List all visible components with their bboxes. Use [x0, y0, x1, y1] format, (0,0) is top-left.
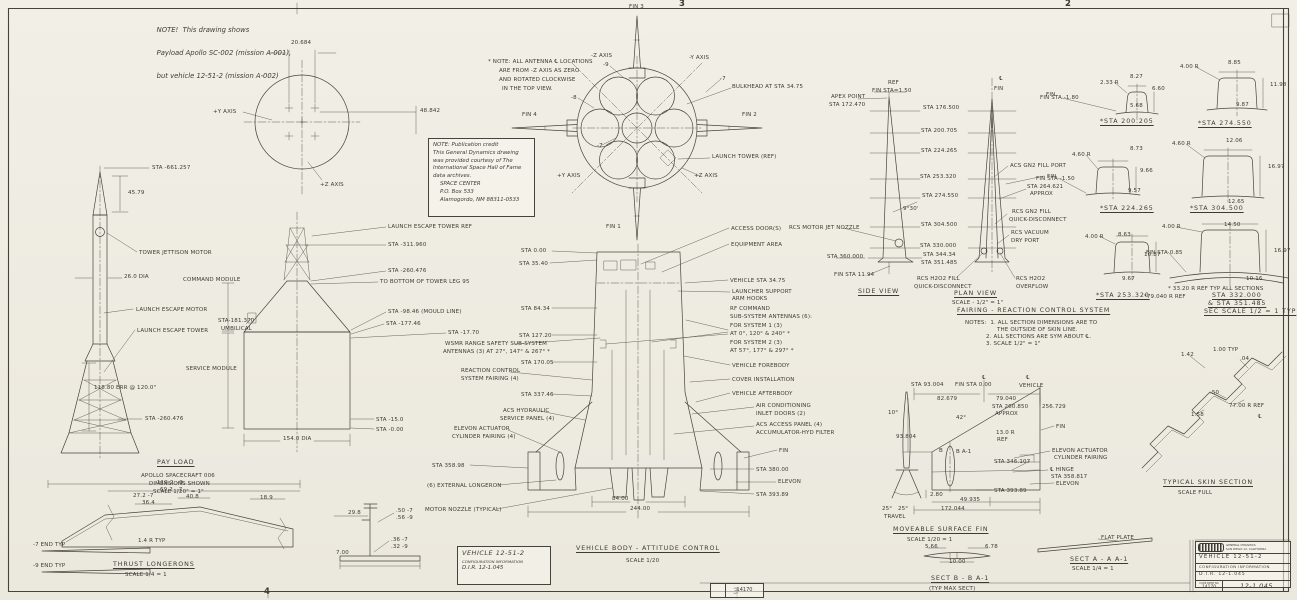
drawing-label: -Y AXIS: [689, 55, 709, 61]
drawing-label: SCALE 1/4 = 1: [1072, 566, 1114, 572]
drawing-label: OVERFLOW: [1016, 284, 1048, 290]
credit-line: Alamogordo, NM 88311-0533: [433, 197, 530, 205]
drawing-label: FLAT PLATE: [1101, 535, 1134, 541]
drawing-label: 27.2 -7: [133, 493, 154, 499]
drawing-label: WSMR RANGE SAFETY SUB-SYSTEM: [445, 341, 547, 347]
drawing-label: TYPICAL SKIN SECTION: [1163, 479, 1253, 486]
drawing-label: COVER INSTALLATION: [732, 377, 795, 383]
drawing-label: 6.78: [985, 544, 998, 550]
general-dynamics-logo-icon: [1198, 543, 1224, 552]
drawing-label: 48.842: [420, 108, 440, 114]
drawing-label: COMMAND MODULE: [183, 277, 241, 283]
drawing-label: ELEVON: [778, 479, 801, 485]
title-block-number-row: CODE IDENT NO 14170 12-1.045: [1196, 580, 1290, 592]
drawing-label: SERVICE PANEL (4): [500, 416, 554, 422]
drawing-label: APPROX: [1030, 191, 1053, 197]
drawing-label: 256.729: [1042, 404, 1066, 410]
drawing-label: ELEVON: [1056, 481, 1079, 487]
drawing-label: *STA 200.205: [1100, 118, 1154, 125]
drawing-label: (TYP MAX SECT): [929, 586, 975, 592]
drawing-label: SCALE 1/4 = 1: [125, 572, 167, 578]
drawing-label: RCS MOTOR JET NOZZLE: [789, 225, 860, 231]
drawing-label: STA 332.000: [1212, 292, 1262, 299]
drawing-label: FOR SYSTEM 1 (3): [730, 323, 782, 329]
drawing-label: 20.684: [291, 40, 311, 46]
drawing-label: STA -98.46 (MOULD LINE): [388, 309, 462, 315]
drawing-label: FIN STA 0.00: [955, 382, 992, 388]
drawing-label: .56 -9: [396, 515, 413, 521]
info-config: CONFIGURATION INFORMATION: [462, 559, 546, 564]
drawing-label: ACCESS DOOR(S): [731, 226, 781, 232]
drawing-label: FIN 1: [606, 224, 621, 230]
drawing-label: 1.00 TYP: [1213, 347, 1238, 353]
drawing-label: BULKHEAD AT STA 34.75: [732, 84, 803, 90]
drawing-label: RCS H2O2 FILL: [917, 276, 960, 282]
drawing-label: 2: [1065, 0, 1071, 10]
drawing-label: * NOTE: ALL ANTENNA ℄ LOCATIONS: [488, 59, 593, 65]
drawing-label: ELEVON ACTUATOR: [1052, 448, 1108, 454]
drawing-label: STA 358.98: [432, 463, 465, 469]
drawing-label: *STA 304.500: [1190, 205, 1244, 212]
drawing-label: FIN: [1056, 424, 1065, 430]
drawing-label: FIN 3: [629, 4, 644, 10]
credit-line: NOTE: Publication credit: [433, 142, 530, 150]
drawing-label: SIDE VIEW: [858, 288, 899, 295]
drawing-label: ARM HOOKS: [732, 296, 767, 302]
drawing-label: STA-181.370: [218, 318, 254, 324]
blueprint-sheet: 20.68448.842+Y AXIS+Z AXISSTA -661.25745…: [0, 0, 1297, 600]
drawing-label: NOTES: 1. ALL SECTION DIMENSIONS ARE TO: [965, 320, 1097, 326]
drawing-label: 79.040: [996, 396, 1016, 402]
drawing-label: 9.57: [1128, 188, 1141, 194]
drawing-label: SEC SCALE 1/2 = 1 TYP: [1204, 308, 1296, 315]
drawing-label: 4: [264, 588, 270, 598]
drawing-label: 2.80: [930, 492, 943, 498]
drawing-label: SCALE - 1/2" = 1": [952, 300, 1003, 306]
drawing-label: ACS ACCESS PANEL (4): [756, 422, 822, 428]
drawing-label: AT 0°, 120° & 240° *: [730, 331, 790, 337]
drawing-label: 16.97: [1268, 164, 1285, 170]
drawing-label: 4.60 R: [1072, 152, 1091, 158]
drawing-label: VEHICLE FOREBODY: [732, 363, 790, 369]
drawing-label: STA 260.850: [992, 404, 1028, 410]
drawing-label: .04: [1240, 356, 1249, 362]
drawing-label: REACTION CONTROL: [461, 368, 520, 374]
drawing-label: 11.98: [1270, 82, 1287, 88]
drawing-label: 10.00: [949, 559, 966, 565]
drawing-label: 119.2 -9: [157, 480, 183, 486]
drawing-label: 3: [679, 0, 685, 10]
drawing-label: 49.935: [960, 497, 980, 503]
drawing-label: 3. SCALE 1/2" = 1": [986, 341, 1041, 347]
drawing-label: 14.50: [1224, 222, 1241, 228]
drawing-label: B A-1: [956, 449, 971, 455]
drawing-label: FIN STA 0.85: [1146, 250, 1183, 256]
drawing-label: 7.00: [336, 550, 349, 556]
drawing-label: 9.67: [1122, 276, 1135, 282]
drawing-label: 25°: [882, 506, 892, 512]
drawing-label: FIN: [994, 86, 1003, 92]
drawing-label: +Z AXIS: [320, 182, 344, 188]
drawing-label: FIN 4: [522, 112, 537, 118]
drawing-label: SECT B - B A-1: [931, 575, 989, 582]
drawing-label: AT 57°, 177° & 297° *: [730, 348, 794, 354]
drawing-label: *79.040 R REF: [1144, 294, 1186, 300]
drawing-label: 5.66: [925, 544, 938, 550]
drawing-label: APEX POINT: [831, 94, 865, 100]
drawing-label: 2. ALL SECTIONS ARE SYM ABOUT ℄.: [986, 334, 1091, 340]
drawing-label: 84.00: [612, 496, 629, 502]
drawing-label: FAIRING - REACTION CONTROL SYSTEM: [957, 307, 1110, 314]
drawing-label: STA -177.46: [386, 321, 421, 327]
drawing-label: SERVICE MODULE: [186, 366, 237, 372]
drawing-label: RCS H2O2: [1016, 276, 1045, 282]
drawing-label: 69.2 -7: [160, 487, 182, 493]
drawing-label: -8: [571, 95, 577, 101]
drawing-label: ANTENNAS (3) AT 27°, 147° & 267° *: [443, 349, 550, 355]
drawing-label: VEHICLE BODY - ATTITUDE CONTROL: [576, 545, 720, 552]
drawing-label: 77.00 R REF: [1229, 403, 1264, 409]
title-block: GENERAL DYNAMICS SAN DIEGO 12, CALIFORNI…: [1195, 541, 1291, 588]
drawing-label: SCALE 1/20 = 1: [907, 537, 952, 543]
drawing-label: 9.87: [1236, 102, 1249, 108]
drawing-label: RCS GN2 FILL: [1012, 209, 1051, 215]
drawing-label: .50 -7: [396, 508, 413, 514]
credit-line: data archives.: [433, 173, 530, 181]
drawing-label: 8.85: [1228, 60, 1241, 66]
drawing-label: *STA 274.550: [1198, 120, 1252, 127]
drawing-label: 1.42: [1181, 352, 1194, 358]
drawing-label: APPROX: [995, 411, 1018, 417]
drawing-label: 4.00 R: [1180, 64, 1199, 70]
drawing-label: 9.66: [1140, 168, 1153, 174]
vehicle-info-box: VEHICLE 12-51-2 CONFIGURATION INFORMATIO…: [457, 546, 551, 585]
drawing-label: +Y AXIS: [557, 173, 580, 179]
drawing-label: 154.0 DIA: [283, 436, 311, 442]
drawing-label: LAUNCH ESCAPE MOTOR: [136, 307, 207, 313]
drawing-label: -7: [720, 76, 726, 82]
drawing-label: UMBILICAL: [221, 326, 252, 332]
drawing-label: STA -311.960: [388, 242, 426, 248]
title-block-config: CONFIGURATION INFORMATION: [1196, 563, 1290, 571]
stamp-number: 14170: [726, 584, 763, 597]
drawing-label: STA -17.70: [448, 330, 479, 336]
drawing-label: +Z AXIS: [694, 173, 718, 179]
drawing-label: -9: [603, 62, 609, 68]
drawing-label: -9 END TYP: [33, 563, 65, 569]
drawing-scope-note: NOTE! This drawing shows Payload Apollo …: [148, 13, 291, 94]
credit-line: P.O. Box 533: [433, 189, 530, 197]
drawing-label: ℄ HINGE: [1050, 467, 1074, 473]
drawing-label: THRUST LONGERONS: [113, 561, 195, 568]
stamp-blank-cell: [711, 584, 726, 597]
drawing-label: 18.9: [260, 495, 273, 501]
drawing-label: FIN STA 11.94: [834, 272, 874, 278]
code-ident-number: 14170: [1202, 586, 1216, 590]
drawing-label: 45.79: [128, 190, 145, 196]
drawing-label: 8.63: [1118, 232, 1131, 238]
drawing-label: 4.60 R: [1172, 141, 1191, 147]
drawing-label: STA -15.0: [376, 417, 404, 423]
drawing-label: AND ROTATED CLOCKWISE: [499, 77, 576, 83]
drawing-label: -Z AXIS: [591, 53, 612, 59]
drawing-label: 118.80 ERR @ 120.0": [94, 385, 156, 391]
drawing-label: VEHICLE AFTERBODY: [732, 391, 792, 397]
drawing-number: 12-1.045: [1223, 581, 1290, 592]
drawing-label: 13.0 R: [996, 430, 1015, 436]
drawing-label: 40.8: [186, 494, 199, 500]
drawing-label: & STA 351.485: [1208, 300, 1266, 307]
drawing-label: STA 304.500: [921, 222, 957, 228]
publication-credit-box: NOTE: Publication credit This General Dy…: [428, 138, 535, 217]
drawing-label: STA 380.00: [756, 467, 789, 473]
drawing-label: REF: [997, 437, 1008, 443]
drawing-label: 4.00 R: [1085, 234, 1104, 240]
info-vehicle: VEHICLE 12-51-2: [462, 549, 546, 557]
drawing-label: STA 274.550: [922, 193, 958, 199]
drawing-label: 6.60: [1152, 86, 1165, 92]
drawing-label: MOTOR NOZZLE (TYPICAL): [425, 507, 502, 513]
drawing-label: (6) EXTERNAL LONGERON: [427, 483, 502, 489]
drawing-label: TRAVEL: [884, 514, 906, 520]
drawing-label: 16.97: [1274, 248, 1291, 254]
drawing-label: STA 172.470: [829, 102, 865, 108]
drawing-label: 25°: [898, 506, 908, 512]
drawing-label: STA 127.20: [519, 333, 552, 339]
drawing-label: 93.804: [896, 434, 916, 440]
credit-line: was provided courtesy of The: [433, 158, 530, 166]
drawing-label: FIN: [779, 448, 788, 454]
drawing-label: LAUNCH ESCAPE TOWER REF: [388, 224, 472, 230]
drawing-label: REF: [888, 80, 899, 86]
drawing-label: RF COMMAND: [730, 306, 770, 312]
drawing-label: 26.0 DIA: [124, 274, 149, 280]
drawing-label: *STA 224.265: [1100, 205, 1154, 212]
title-block-dir: D.I.R. 12-1.045: [1196, 571, 1290, 580]
drawing-label: 2.33 R: [1100, 80, 1119, 86]
drawing-label: STA 393.89: [994, 488, 1027, 494]
drawing-label: TOWER JETTISON MOTOR: [139, 250, 212, 256]
drawing-label: STA 253.320: [920, 174, 956, 180]
drawing-label: ACCUMULATOR-HYD FILTER: [756, 430, 834, 436]
drawing-label: CYLINDER FAIRING (4): [452, 434, 516, 440]
drawing-label: STA 224.265: [921, 148, 957, 154]
drawing-label: QUICK-DISCONNECT: [1009, 217, 1067, 223]
drawing-label: 4.00 R: [1162, 224, 1181, 230]
drawing-label: ℄: [982, 375, 986, 381]
drawing-label: LAUNCHER SUPPORT: [732, 289, 792, 295]
drawing-label: STA -260.476: [388, 268, 426, 274]
drawing-label: B: [939, 448, 943, 454]
drawing-label: QUICK-DISCONNECT: [914, 284, 972, 290]
drawing-label: SYSTEM FAIRING (4): [461, 376, 519, 382]
drawing-label: 12.06: [1226, 138, 1243, 144]
drawing-label: CYLINDER FAIRING: [1054, 455, 1107, 461]
drawing-label: LAUNCH ESCAPE TOWER: [137, 328, 208, 334]
drawing-label: LAUNCH TOWER (REF): [712, 154, 776, 160]
drawing-label: EQUIPMENT AREA: [731, 242, 782, 248]
drawing-label: STA 344.34: [923, 252, 956, 258]
drawing-label: FOR SYSTEM 2 (3): [730, 340, 782, 346]
drawing-label: STA 93.004: [911, 382, 944, 388]
drawing-label: VEHICLE: [1019, 383, 1043, 389]
drawing-label: ELEVON ACTUATOR: [454, 426, 510, 432]
drawing-label: +Y AXIS: [213, 109, 236, 115]
drawing-label: SUB-SYSTEM ANTENNAS (6):: [730, 314, 812, 320]
drawing-label: STA 264.621: [1027, 184, 1063, 190]
drawing-label: ℄: [999, 76, 1003, 82]
drawing-label: 36.4: [142, 500, 155, 506]
title-block-vehicle: VEHICLE 12-51-2: [1196, 553, 1290, 563]
drawing-label: MOVEABLE SURFACE FIN: [893, 526, 988, 533]
drawing-label: SCALE 1/20: [626, 558, 659, 564]
credit-line: This General Dynamics drawing: [433, 150, 530, 158]
drawing-label: INLET DOORS (2): [756, 411, 805, 417]
drawing-label: THE OUTSIDE OF SKIN LINE.: [997, 327, 1078, 333]
drawing-label: STA 393.89: [756, 492, 789, 498]
drawing-label: 8.27: [1130, 74, 1143, 80]
drawing-label: -7: [597, 143, 603, 149]
drawing-label: STA 330.000: [920, 243, 956, 249]
drawing-label: 82.679: [937, 396, 957, 402]
drawing-label: STA 0.00: [521, 248, 546, 254]
drawing-label: ℄: [1026, 375, 1030, 381]
drawing-label: PLAN VIEW: [954, 290, 997, 297]
drawing-label: APOLLO SPACECRAFT 006: [141, 473, 215, 479]
drawing-label: TO BOTTOM OF TOWER LEG 95: [380, 279, 470, 285]
drawing-label: SCALE FULL: [1178, 490, 1212, 496]
drawing-label: IN THE TOP VIEW.: [502, 86, 553, 92]
drawing-label: STA 360.000: [827, 254, 863, 260]
drawing-label: ACS GN2 FILL PORT: [1010, 163, 1066, 169]
drawing-label: FIN STA=1.50: [872, 88, 912, 94]
drawing-label: STA 170.05: [521, 360, 554, 366]
drawing-label: STA -0.00: [376, 427, 404, 433]
drawing-label: 1.58: [1191, 412, 1204, 418]
title-block-company-row: GENERAL DYNAMICS SAN DIEGO 12, CALIFORNI…: [1196, 542, 1290, 553]
drawing-label: ℄: [1258, 414, 1262, 420]
drawing-label: FIN STA -1.50: [1036, 176, 1075, 182]
scope-note-line: but vehicle 12-51-2 (mission A-002): [157, 72, 279, 80]
drawing-label: FIN STA -1.80: [1040, 95, 1079, 101]
drawing-label: FIN 2: [742, 112, 757, 118]
scope-note-line: Payload Apollo SC-002 (mission A-001),: [157, 49, 291, 57]
drawing-label: RCS VACUUM: [1011, 230, 1049, 236]
drawing-label: STA 346.107: [994, 459, 1030, 465]
drawing-label: 8.73: [1130, 146, 1143, 152]
drawing-label: 172.044: [941, 506, 965, 512]
drawing-label: 9°30': [903, 206, 919, 212]
drawing-label: STA -661.257: [152, 165, 190, 171]
drawing-label: ARE FROM -Z AXIS AS ZERO: [499, 68, 580, 74]
drawing-label: 1.4 R TYP: [138, 538, 165, 544]
drawing-label: STA -260.476: [145, 416, 183, 422]
drawing-label: 244.00: [630, 506, 650, 512]
credit-line: SPACE CENTER: [433, 181, 530, 189]
drawing-label: SECT A - A A-1: [1070, 556, 1128, 563]
drawing-label: .36 -7: [391, 537, 408, 543]
drawing-label: *STA 253.320: [1096, 292, 1150, 299]
drawing-label: ACS HYDRAULIC: [503, 408, 549, 414]
info-dir: D.I.R. 12-1.045: [462, 565, 546, 571]
drawing-label: 10°: [888, 410, 898, 416]
drawing-label: STA 84.34: [521, 306, 550, 312]
drawing-label: 5.68: [1130, 103, 1143, 109]
drawing-label: VEHICLE STA 34.75: [730, 278, 785, 284]
drawing-label: 29.8: [348, 510, 361, 516]
scope-note-line: NOTE! This drawing shows: [157, 26, 250, 34]
drawing-label: STA 351.485: [921, 260, 957, 266]
drawing-label: .50: [1210, 390, 1219, 396]
drawing-number-stamp: 14170: [710, 583, 764, 598]
drawing-label: PAY LOAD: [157, 459, 195, 466]
drawing-label: 10.16: [1246, 276, 1263, 282]
drawing-label: STA 337.46: [521, 392, 554, 398]
drawing-label: .32 -9: [391, 544, 408, 550]
drawing-label: STA 200.705: [921, 128, 957, 134]
credit-line: International Space Hall of Fame: [433, 165, 530, 173]
drawing-label: 42°: [956, 415, 966, 421]
drawing-label: DRY PORT: [1011, 238, 1039, 244]
drawing-label: STA 358.817: [1051, 474, 1087, 480]
drawing-label: -7 END TYP: [33, 542, 65, 548]
drawing-label: STA 176.500: [923, 105, 959, 111]
company-location: SAN DIEGO 12, CALIFORNIA: [1226, 548, 1266, 551]
drawing-label: STA 35.40: [519, 261, 548, 267]
drawing-label: AIR CONDITIONING: [756, 403, 811, 409]
